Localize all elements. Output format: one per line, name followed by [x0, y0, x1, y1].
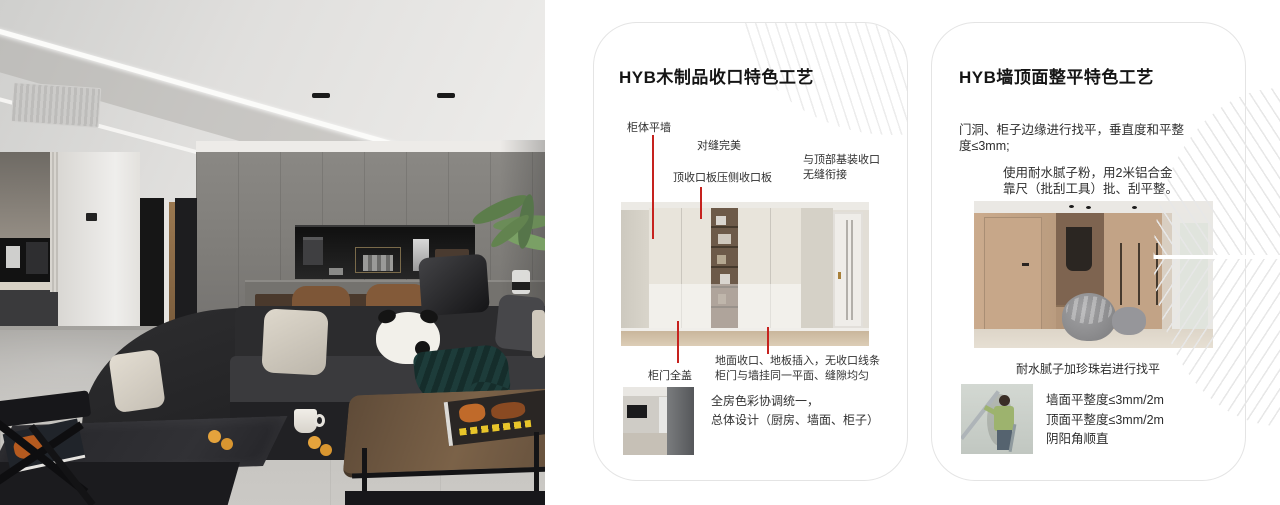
living-room-photo — [0, 0, 545, 505]
pillow-white-left — [108, 349, 166, 413]
magazine2-figure-1 — [458, 402, 486, 423]
pillow-black-leather — [418, 254, 490, 317]
fruit-3 — [308, 436, 321, 449]
img1-shelf-line — [711, 246, 738, 248]
thumb1-gray-cabinet — [667, 387, 694, 455]
img1-decor-2 — [718, 234, 731, 244]
leveling-paragraph-1: 门洞、柜子边缘进行找平，垂直度和平整 度≤3mm; — [959, 123, 1184, 154]
ac-vent — [11, 82, 102, 128]
floor-note-line2: 柜门与墙挂同一平面、缝隙均匀 — [715, 369, 880, 384]
card-woodwork-craft: HYB木制品收口特色工艺 柜体平墙 对缝完美 顶收口板压侧收口板 与顶部基装收口… — [593, 22, 908, 481]
thumb2-worker-head — [999, 395, 1010, 406]
white-wall-column — [58, 152, 140, 330]
label-cabinet-flush-wall: 柜体平墙 — [627, 119, 671, 135]
color-note: 全房色彩协调统一， 总体设计（厨房、墙面、柜子） — [711, 392, 879, 429]
img1-door-stripe-2 — [851, 220, 853, 320]
card1-title: HYB木制品收口特色工艺 — [619, 63, 814, 88]
wardrobe-render-image — [621, 202, 869, 346]
fruit-2 — [221, 438, 233, 450]
page: HYB木制品收口特色工艺 柜体平墙 对缝完美 顶收口板压侧收口板 与顶部基装收口… — [0, 0, 1280, 505]
spec-line1: 墙面平整度≤3mm/2m — [1046, 391, 1164, 411]
kitchen-lower-cabinets — [0, 290, 58, 330]
color-note-line2: 总体设计（厨房、墙面、柜子） — [711, 411, 879, 430]
label-top-joint-line2: 无缝衔接 — [803, 166, 847, 182]
niche-bottles — [363, 255, 393, 271]
img2-door-handle — [1022, 263, 1029, 266]
thumb1-tv — [627, 405, 647, 418]
spec-line2: 顶面平整度≤3mm/2m — [1046, 411, 1164, 431]
ceiling-light-2 — [437, 93, 455, 98]
img2-handle-2 — [1138, 243, 1140, 305]
card-wall-leveling-craft: HYB墙顶面整平特色工艺 门洞、柜子边缘进行找平，垂直度和平整 度≤3mm; 使… — [931, 22, 1246, 481]
img1-decor-4 — [720, 274, 730, 284]
thumb1-floor — [623, 433, 667, 455]
floor-note: 地面收口、地板插入，无收口线条 柜门与墙挂同一平面、缝隙均匀 — [715, 354, 880, 383]
label-perfect-seam: 对缝完美 — [697, 137, 741, 153]
annotation-line-4 — [767, 327, 769, 354]
img1-shelf-line — [711, 266, 738, 268]
spec-line3: 阴阳角顺直 — [1046, 430, 1164, 450]
plant-vase-band — [512, 282, 530, 290]
worker-thumbnail-image — [961, 384, 1033, 454]
thumb2-worker-shirt — [994, 406, 1014, 431]
img2-blanket-folds — [1066, 296, 1112, 324]
img2-ottoman — [1112, 307, 1146, 335]
dark-doorway — [140, 198, 164, 330]
annotation-line-2 — [700, 187, 702, 219]
img2-hanging-clothes — [1066, 227, 1092, 271]
img2-spot-2 — [1086, 206, 1091, 209]
fruit-4 — [320, 444, 332, 456]
img1-door-stripe-1 — [846, 220, 848, 320]
img1-right-wall — [801, 208, 833, 330]
kitchen-oven — [26, 242, 48, 274]
img2-handle-3 — [1156, 243, 1158, 305]
card2-title: HYB墙顶面整平特色工艺 — [959, 63, 1154, 88]
img2-ceiling — [974, 201, 1213, 213]
img1-floor — [621, 331, 869, 346]
image2-caption: 耐水腻子加珍珠岩进行找平 — [1016, 360, 1160, 377]
img2-door — [984, 217, 1042, 339]
img1-shelf-line — [711, 226, 738, 228]
pillow-cream — [261, 308, 328, 375]
mug-handle — [314, 414, 325, 427]
img1-wardrobe — [649, 208, 801, 330]
mug — [294, 404, 328, 436]
flatness-specs: 墙面平整度≤3mm/2m 顶面平整度≤3mm/2m 阴阳角顺直 — [1046, 391, 1164, 450]
coffee-table-stone-front — [0, 462, 240, 505]
img1-door-knob — [838, 272, 841, 279]
hatch-decoration-icon — [712, 22, 908, 163]
img2-handle-1 — [1120, 243, 1122, 305]
para2-line1: 使用耐水腻子粉，用2米铝合金 — [1003, 166, 1178, 182]
img2-glass-pane — [1180, 223, 1208, 331]
annotation-line-1 — [652, 135, 654, 239]
wood-room-image — [974, 201, 1213, 348]
para2-line2: 靠尺（批刮工具）批、刮平整。 — [1003, 182, 1178, 198]
img2-white-door-frame — [1162, 213, 1172, 348]
kitchen-coffee-machine — [6, 246, 20, 268]
floor-note-line1: 地面收口、地板插入，无收口线条 — [715, 354, 880, 369]
label-top-board: 顶收口板压侧收口板 — [673, 169, 772, 185]
niche-machine-black — [303, 237, 323, 265]
magazine2-figure-2 — [490, 401, 526, 421]
img1-glow — [649, 284, 801, 330]
img1-decor-1 — [716, 216, 726, 225]
label-full-cover-door: 柜门全盖 — [648, 367, 692, 383]
leveling-paragraph-2: 使用耐水腻子粉，用2米铝合金 靠尺（批刮工具）批、刮平整。 — [1003, 166, 1178, 197]
label-top-joint-line1: 与顶部基装收口 — [803, 151, 880, 167]
light-switch — [86, 213, 97, 221]
corridor-thumbnail-image — [623, 387, 694, 455]
para1-line1: 门洞、柜子边缘进行找平，垂直度和平整 — [959, 123, 1184, 139]
dark-door-2 — [175, 198, 197, 330]
para1-line2: 度≤3mm; — [959, 139, 1184, 155]
img2-spot-3 — [1132, 206, 1137, 209]
ceiling-light-1 — [312, 93, 330, 98]
wood-table-lower-shelf — [345, 491, 545, 505]
img1-white-door — [833, 212, 863, 328]
img1-decor-3 — [717, 255, 726, 264]
pillow-beige-edge — [532, 310, 545, 358]
niche-cups — [329, 268, 343, 275]
color-note-line1: 全房色彩协调统一， — [711, 392, 879, 411]
fruit-1 — [208, 430, 221, 443]
img2-spot-1 — [1069, 205, 1074, 208]
annotation-line-3 — [677, 321, 679, 363]
img1-left-wall — [621, 210, 649, 330]
